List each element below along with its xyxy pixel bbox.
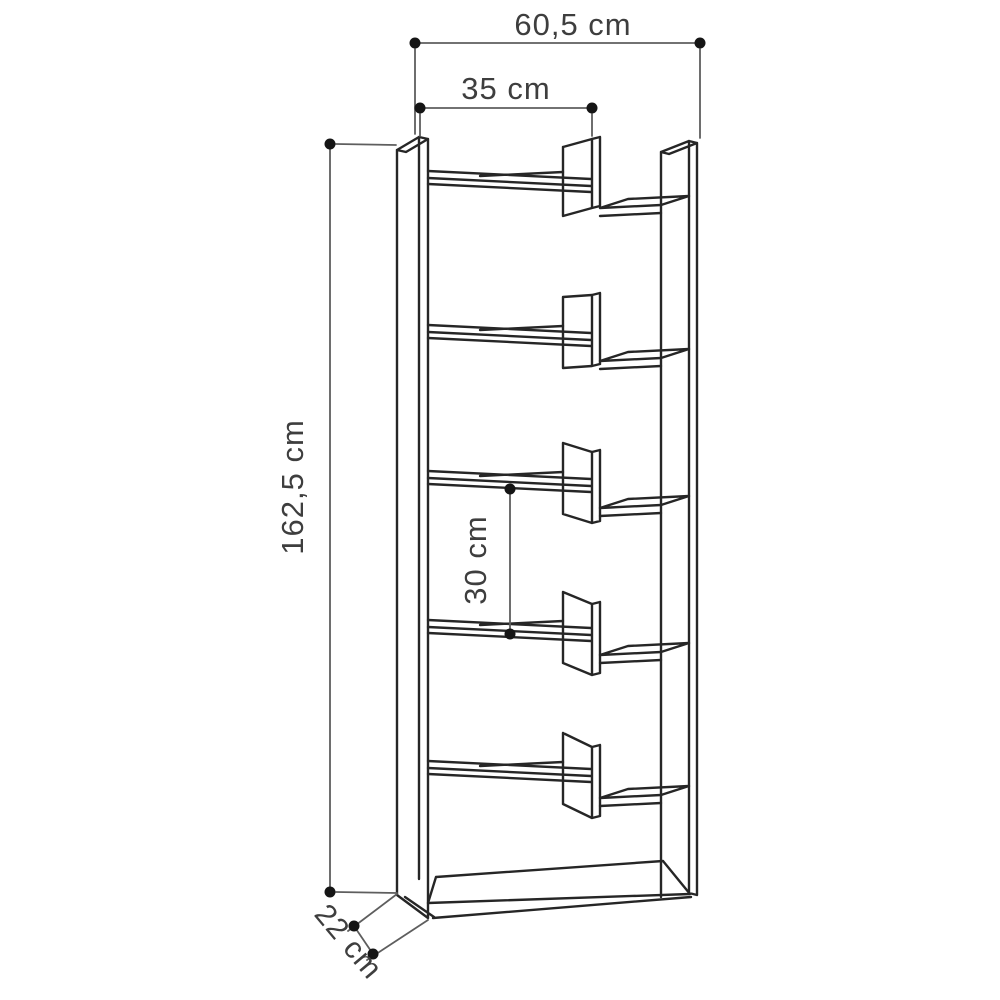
tier1-left-shelf: [428, 171, 591, 192]
height-extension-lines: [336, 144, 397, 893]
width-inner-label: 35 cm: [461, 71, 550, 106]
shelf-tier-2: [428, 293, 689, 369]
shelf-spacing-label: 30 cm: [458, 515, 493, 604]
bottom-shelf-edges: [428, 861, 691, 918]
tier2-divider: [563, 293, 600, 368]
left-side-panel: [397, 137, 434, 918]
dimension-endpoint-dot: [415, 103, 426, 114]
tier5-right-shelf: [600, 786, 689, 806]
shelf-tier-5: [428, 733, 689, 818]
height-label: 162,5 cm: [275, 419, 310, 555]
dimension-endpoint-dot: [325, 887, 336, 898]
tier3-right-shelf: [600, 496, 689, 516]
width-total-label: 60,5 cm: [514, 7, 631, 42]
dimension-endpoint-dot: [587, 103, 598, 114]
width-total-extension-lines: [415, 49, 700, 138]
dimension-width-inner: 35 cm: [415, 71, 598, 136]
bookshelf-technical-drawing: 60,5 cm 35 cm 162,5 cm: [0, 0, 1000, 1000]
shelf-tier-3: [428, 443, 689, 523]
depth-label: 22 cm: [308, 898, 389, 986]
right-panel-edges: [661, 141, 697, 897]
tier1-divider: [563, 137, 600, 216]
tier1-right-shelf: [600, 196, 689, 216]
dimension-height: 162,5 cm: [275, 139, 397, 898]
bottom-shelf: [428, 861, 691, 918]
dimension-endpoint-dot: [505, 484, 516, 495]
dimension-depth: 22 cm: [308, 894, 428, 986]
bookshelf-drawing: [397, 137, 697, 918]
dimension-endpoint-dot: [410, 38, 421, 49]
tier3-divider: [563, 443, 600, 523]
dimension-endpoint-dot: [695, 38, 706, 49]
dimension-endpoint-dot: [325, 139, 336, 150]
right-side-panel: [661, 141, 697, 897]
shelf-tier-1: [428, 137, 689, 216]
tier2-right-shelf: [600, 349, 689, 369]
dimension-width-total: 60,5 cm: [410, 7, 706, 138]
dimension-diagram: 60,5 cm 35 cm 162,5 cm: [0, 0, 1000, 1000]
dimension-endpoint-dot: [505, 629, 516, 640]
left-panel-edges: [397, 137, 434, 918]
tier2-left-shelf: [428, 325, 591, 346]
dimension-shelf-spacing: 30 cm: [458, 484, 516, 640]
tier4-right-shelf: [600, 643, 689, 663]
dimensions: 60,5 cm 35 cm 162,5 cm: [275, 7, 706, 986]
tier5-left-shelf: [428, 761, 591, 782]
width-inner-extension-lines: [420, 114, 592, 136]
